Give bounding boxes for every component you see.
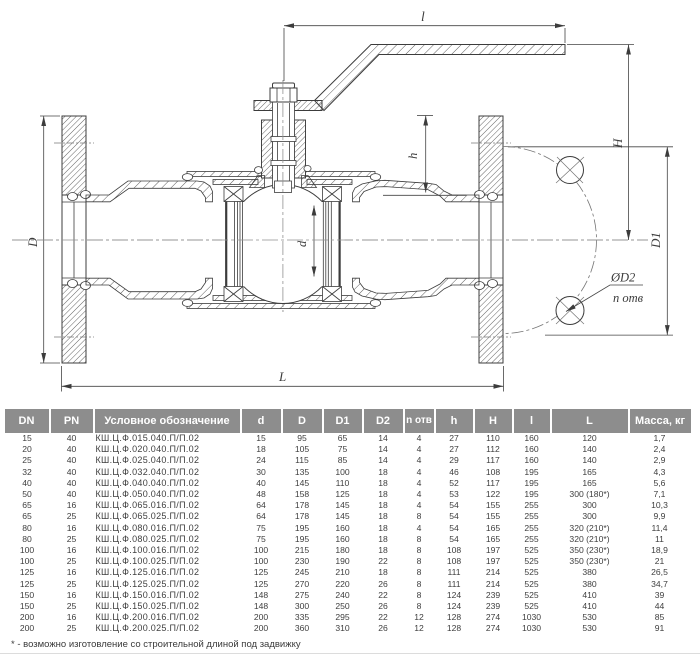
svg-text:ØD2: ØD2 bbox=[610, 271, 635, 285]
svg-text:n отв: n отв bbox=[613, 291, 644, 305]
svg-text:D1: D1 bbox=[648, 232, 663, 249]
svg-text:h: h bbox=[406, 153, 420, 159]
svg-text:l: l bbox=[421, 9, 425, 24]
svg-text:d: d bbox=[295, 240, 309, 247]
svg-text:D: D bbox=[25, 237, 40, 248]
svg-text:L: L bbox=[278, 369, 286, 384]
svg-text:H: H bbox=[610, 138, 625, 149]
